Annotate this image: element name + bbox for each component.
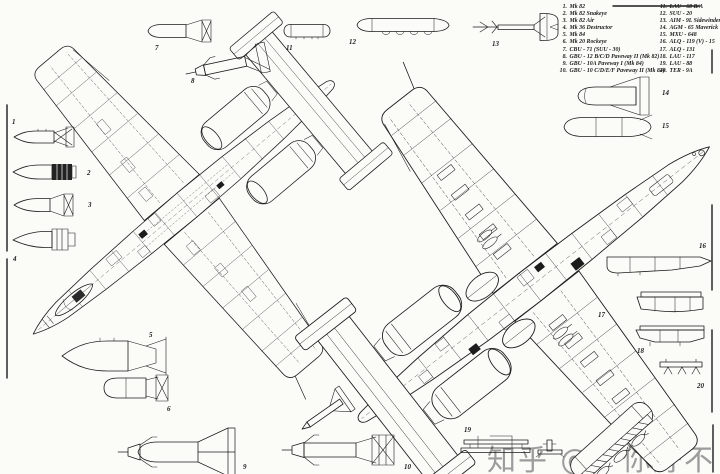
legend-item: 1.Mk 82 bbox=[557, 4, 652, 11]
legend-item: 7.CBU - 71 (SUU - 30) bbox=[557, 47, 652, 54]
legend-item: 4.Mk 36 Destructor bbox=[557, 25, 652, 32]
silhouette-lau68 bbox=[284, 25, 330, 40]
legend-item: 11.LAU - 68 B/A bbox=[657, 4, 719, 11]
label-9: 9 bbox=[243, 463, 247, 471]
silhouette-mk82-snakeye bbox=[13, 164, 76, 180]
silhouette-mk36-destructor bbox=[13, 229, 75, 250]
legend-item: 2.Mk 82 Snakeye bbox=[557, 11, 652, 18]
label-8: 8 bbox=[191, 77, 195, 85]
legend-item: 3.Mk 82 Air bbox=[557, 18, 652, 25]
silhouette-gbu10c bbox=[282, 435, 394, 465]
legend-item: 19.LAU - 88 bbox=[657, 61, 719, 68]
silhouette-mk82-air bbox=[14, 194, 73, 216]
legend-item: 10.GBU - 10 C/D/E/F Paveway II (Mk 84) bbox=[557, 68, 652, 75]
silhouette-suu20 bbox=[357, 19, 449, 35]
silhouette-agm65 bbox=[578, 77, 649, 115]
legend-item: 5.Mk 84 bbox=[557, 32, 652, 39]
label-12: 12 bbox=[349, 38, 357, 46]
label-3: 3 bbox=[87, 201, 92, 209]
silhouette-alq119 bbox=[607, 257, 711, 276]
label-11: 11 bbox=[286, 44, 293, 52]
legend-item: 6.Mk 20 Rockeye bbox=[557, 39, 652, 46]
silhouette-mk82 bbox=[14, 127, 74, 147]
legend-item: 16.ALQ - 119 (V) - 15 bbox=[657, 39, 719, 46]
label-2: 2 bbox=[86, 169, 91, 177]
legend-item: 18.LAU - 117 bbox=[657, 54, 719, 61]
weapons-legend: 1.Mk 82 2.Mk 82 Snakeye 3.Mk 82 Air 4.Mk… bbox=[557, 4, 719, 75]
legend-item: 9.GBU - 10A Paveway I (Mk 84) bbox=[557, 61, 652, 68]
label-6: 6 bbox=[167, 405, 171, 413]
silhouette-gbu10a bbox=[118, 428, 235, 474]
label-5: 5 bbox=[149, 331, 153, 339]
silhouette-pylon-adapter bbox=[536, 440, 564, 457]
label-1: 1 bbox=[12, 118, 16, 126]
silhouette-aim9 bbox=[473, 14, 558, 41]
legend-item: 8.GBU - 12 B/C/D Paveway II (Mk 82) bbox=[557, 54, 652, 61]
label-20: 20 bbox=[696, 382, 705, 390]
legend-item: 12.SUU - 20 bbox=[657, 11, 719, 18]
silhouette-mk20-rockeye bbox=[104, 375, 168, 401]
legend-item: 14.AGM - 65 Maverick bbox=[657, 25, 719, 32]
silhouette-ter9a bbox=[660, 359, 702, 374]
legend-item: 13.AIM - 9L Sidewinder bbox=[657, 18, 719, 25]
label-7: 7 bbox=[155, 44, 159, 52]
a10-armament-diagram: 知乎 @ 你好不 bbox=[0, 0, 720, 474]
label-16: 16 bbox=[699, 242, 707, 250]
legend-column-left: 1.Mk 82 2.Mk 82 Snakeye 3.Mk 82 Air 4.Mk… bbox=[557, 4, 652, 75]
label-4: 4 bbox=[12, 255, 17, 263]
label-18: 18 bbox=[637, 347, 645, 355]
silhouette-lau88 bbox=[461, 436, 530, 453]
label-17: 17 bbox=[598, 311, 606, 319]
silhouette-alq131 bbox=[637, 292, 703, 312]
legend-item: 17.ALQ - 131 bbox=[657, 47, 719, 54]
silhouette-lau117 bbox=[636, 326, 704, 346]
silhouette-mxu648 bbox=[564, 115, 652, 139]
legend-item: 20.TER - 9A bbox=[657, 68, 719, 75]
label-15: 15 bbox=[662, 122, 670, 130]
label-14: 14 bbox=[662, 89, 670, 97]
legend-column-right: 11.LAU - 68 B/A 12.SUU - 20 13.AIM - 9L … bbox=[657, 4, 719, 75]
label-10: 10 bbox=[404, 463, 412, 471]
label-13: 13 bbox=[492, 40, 500, 48]
silhouette-mk84 bbox=[62, 337, 166, 375]
label-19: 19 bbox=[464, 426, 472, 434]
silhouette-cbu71 bbox=[148, 20, 211, 42]
